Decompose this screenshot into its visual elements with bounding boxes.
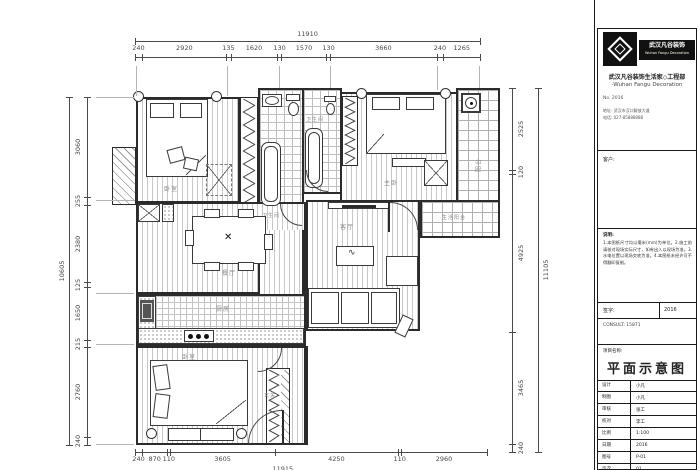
dim-tick: [84, 340, 91, 341]
company-address: 地址: 武汉市汉口解放大道: [603, 108, 650, 114]
kitchen-counter-bottom: [138, 328, 304, 344]
sofa-cushion: [311, 292, 339, 324]
table-cell-label: 设计: [597, 380, 631, 391]
dim-value: 1620: [246, 44, 263, 52]
column-marker: [133, 91, 144, 102]
dim-value: 3605: [214, 455, 231, 463]
pillow: [150, 103, 174, 118]
table-row: 审核 张工: [597, 404, 697, 416]
dim-chain-top: 11910 240 2920 135 1620 130 1570 130 366…: [135, 30, 480, 64]
dim-tick: [509, 174, 516, 175]
bench: [392, 158, 426, 167]
table-row: 日期 2016: [597, 440, 697, 452]
dim-tick: [142, 54, 143, 61]
table-cell-value: P-01: [631, 455, 646, 460]
tv: [342, 205, 376, 208]
pillow: [153, 393, 171, 419]
dim-value: 110: [393, 455, 405, 463]
dim-value: 240: [132, 44, 144, 52]
dim-value: 255: [74, 194, 82, 206]
titleblock-vdivider: [659, 302, 660, 318]
company-phone: 电话: 027-85888888: [603, 115, 643, 121]
dim-line: [135, 452, 487, 453]
dim-value: 4250: [328, 455, 345, 463]
dim-tick: [509, 170, 516, 171]
dim-value: 1650: [74, 305, 82, 322]
company-title-cn: 武汉凡谷装饰生活家◇工程部: [597, 72, 697, 81]
table-cell-label: 校对: [597, 416, 631, 427]
dim-value: 11915: [272, 465, 293, 470]
dim-tick: [84, 282, 91, 283]
dim-value: 10605: [58, 261, 66, 282]
dim-tick: [487, 449, 488, 456]
extension-line: [330, 66, 331, 88]
dim-tick: [326, 54, 327, 61]
chair: [238, 209, 254, 218]
table-cell-value: 小凡: [631, 383, 645, 389]
extension-line: [136, 66, 137, 96]
wall-entry-right: [304, 331, 306, 445]
burner: [196, 334, 201, 339]
extension-line: [227, 66, 228, 96]
dim-line: [538, 88, 539, 452]
sideboard: [162, 204, 174, 222]
dim-tick: [509, 332, 516, 333]
dim-value: 240: [517, 442, 525, 454]
toilet-tank: [324, 96, 336, 102]
room-label: 主卧: [384, 178, 398, 187]
dim-value: 2380: [74, 236, 82, 253]
dim-value: 3465: [517, 380, 525, 397]
dim-line: [87, 97, 88, 445]
dim-tick: [84, 197, 91, 198]
dim-chain-right: 2525 120 4925 3465 240 11105: [506, 88, 550, 452]
dim-value: 2920: [176, 44, 193, 52]
dim-value: 4925: [517, 245, 525, 262]
column-marker: [146, 428, 157, 439]
toilet-bowl: [326, 103, 335, 115]
dim-value: 3660: [375, 44, 392, 52]
room-label: 卫生间: [306, 116, 324, 123]
ceiling-fan-icon: ✕: [224, 232, 232, 243]
table-row: 页次 01: [597, 464, 697, 470]
dim-value: 215: [74, 338, 82, 350]
entry-door-leaf: [282, 410, 284, 444]
dim-tick: [330, 54, 331, 61]
burner: [188, 334, 193, 339]
table-cell-value: 1:100: [631, 431, 649, 436]
chair: [264, 234, 273, 250]
blanket-fold: [216, 400, 246, 424]
table-cell-label: 图号: [597, 452, 631, 463]
toilet-bowl: [288, 102, 299, 116]
pillow: [372, 97, 400, 110]
dim-value: 870: [148, 455, 160, 463]
titleblock-divider: [597, 302, 697, 303]
dim-tick: [535, 88, 542, 89]
bay-window: [112, 147, 136, 205]
dim-value: 130: [322, 44, 334, 52]
dim-tick: [135, 54, 136, 61]
room-label: 厨房: [216, 304, 230, 313]
column-marker: [440, 88, 451, 99]
room-label: 生活阳台: [442, 214, 466, 221]
logo-name-en: Wuhan Fangu Decoration: [639, 51, 695, 56]
extension-line: [437, 66, 438, 90]
floorplan-canvas: 卧室 卫生间 卫生间 主卧 阳台 生活阳台 ✕ 餐厅 ∿: [0, 0, 700, 470]
dim-value: 1570: [296, 44, 313, 52]
dim-value: 240: [74, 435, 82, 447]
table-row: 比例 1:100: [597, 428, 697, 440]
dim-value: 240: [132, 455, 144, 463]
sign-value: 2016: [664, 307, 677, 313]
table-row: 校对 李工: [597, 416, 697, 428]
dim-value: 11105: [542, 260, 550, 281]
sofa-chaise: [386, 256, 418, 286]
blanket-fold: [366, 134, 384, 154]
table-cell-label: 审核: [597, 404, 631, 415]
room-label: 客厅: [340, 222, 354, 231]
bench-split: [200, 428, 201, 441]
dim-value: 130: [273, 44, 285, 52]
room-label: 卧室: [182, 352, 196, 361]
washer-dot: [470, 102, 473, 105]
table-cell-label: 比例: [597, 428, 631, 439]
dim-line: [512, 88, 513, 452]
table-cell-value: 李工: [631, 419, 645, 425]
bathtub-inner: [264, 146, 278, 202]
table-cell-value: 张工: [631, 407, 645, 413]
kitchen-sink-inner: [142, 303, 152, 319]
dim-tick: [84, 205, 91, 206]
room-label: 卧室: [164, 184, 178, 193]
table-cell-label: 页次: [597, 464, 631, 470]
titleblock-table: 设计 小凡 制图 小凡 审核 张工 校对 李工 比例 1:100 日期 2016…: [597, 380, 697, 470]
client-label: 客户:: [603, 156, 615, 163]
dim-tick: [281, 54, 282, 61]
dim-value: 11910: [297, 30, 318, 38]
drawing-title: 平面示意图: [597, 358, 697, 377]
table-cell-value: 2016: [631, 443, 647, 448]
table-cell-label: 日期: [597, 440, 631, 451]
logo-name-cn: 武汉凡谷装饰: [639, 40, 695, 51]
basin-bowl: [265, 96, 279, 105]
dim-tick: [277, 54, 278, 61]
extension-line: [96, 200, 134, 201]
dim-value: 240: [434, 44, 446, 52]
table-cell-value: 小凡: [631, 395, 645, 401]
extension-line: [279, 66, 280, 88]
notes-text: 1.本图纸尺寸均以毫米(mm)为单位。2.施工前请核对现场实际尺寸，如有出入以现…: [603, 240, 692, 266]
table-cell-label: 制图: [597, 392, 631, 403]
titleblock-divider: [597, 344, 697, 345]
chair: [204, 262, 220, 271]
dim-tick: [509, 88, 516, 89]
rug-dashed: [206, 164, 232, 196]
dim-tick: [480, 38, 481, 45]
drawing-number: No. 2016: [603, 96, 623, 101]
table-row: 制图 小凡: [597, 392, 697, 404]
corner-desk: [424, 160, 448, 186]
sign-label: 签字:: [603, 307, 615, 314]
dim-value: 135: [222, 44, 234, 52]
room-label: 阳台: [474, 158, 483, 172]
sofa-cushion: [371, 292, 397, 324]
room-label: 玄关: [264, 392, 276, 399]
burner: [204, 334, 209, 339]
cabinet: [138, 204, 160, 222]
cushion: [183, 157, 199, 172]
notes-title: 说明:: [603, 232, 614, 238]
dim-tick: [84, 445, 91, 446]
extension-line: [479, 66, 480, 88]
company-title-en: -Wuhan Fangu Decoration: [597, 82, 697, 88]
dim-value: 2760: [74, 384, 82, 401]
titleblock-divider: [597, 150, 697, 151]
dim-tick: [84, 437, 91, 438]
dim-tick: [66, 445, 73, 446]
table-row: 图号 P-01: [597, 452, 697, 464]
titleblock-divider: [597, 318, 697, 319]
dim-value: 125: [74, 278, 82, 290]
sofa-cushion: [341, 292, 369, 324]
column-marker: [356, 88, 367, 99]
dim-tick: [509, 444, 516, 445]
chair: [238, 262, 254, 271]
dim-value: 3060: [74, 138, 82, 155]
table-row: 设计 小凡: [597, 380, 697, 392]
titleblock-divider: [597, 228, 697, 229]
dim-chain-left: 10605 3060 255 2380 125 1650 215 2760 24…: [56, 97, 94, 445]
dim-tick: [231, 54, 232, 61]
dim-tick: [226, 54, 227, 61]
dim-line: [135, 57, 480, 58]
dim-value: 1265: [453, 44, 470, 52]
table-decor: ∿: [348, 248, 356, 258]
dim-tick: [509, 452, 516, 453]
dim-tick: [437, 54, 438, 61]
dim-tick: [443, 54, 444, 61]
dim-value: 2960: [436, 455, 453, 463]
pillow: [180, 103, 202, 118]
project-label: 项目名称:: [603, 348, 623, 354]
chair: [185, 230, 194, 246]
dim-line: [69, 97, 70, 445]
logo-name-strip: 武汉凡谷装饰 Wuhan Fangu Decoration: [639, 40, 695, 60]
dim-tick: [535, 452, 542, 453]
column-marker: [211, 91, 222, 102]
consult-line: CONSULT: 15871: [603, 323, 641, 328]
bench: [168, 428, 234, 441]
chair: [204, 209, 220, 218]
pillow: [406, 97, 434, 110]
room-label: 餐厅: [222, 268, 236, 277]
dim-tick: [275, 449, 276, 456]
toilet-tank: [286, 94, 300, 101]
dim-tick: [480, 54, 481, 61]
dim-chain-bottom: 240 870 110 3605 4250 110 2960 11915: [135, 446, 487, 470]
dim-value: 2525: [517, 120, 525, 137]
extension-line: [96, 344, 134, 345]
dim-tick: [84, 347, 91, 348]
dim-tick: [66, 97, 73, 98]
dim-value: 120: [517, 166, 525, 178]
dim-line: [135, 41, 480, 42]
extension-line: [96, 97, 134, 98]
wardrobe-zigzag-icon: [344, 98, 356, 164]
dim-value: 110: [163, 455, 175, 463]
extension-line: [96, 293, 134, 294]
dim-tick: [84, 97, 91, 98]
extension-line: [96, 444, 134, 445]
column-marker: [236, 428, 247, 439]
dim-tick: [84, 287, 91, 288]
